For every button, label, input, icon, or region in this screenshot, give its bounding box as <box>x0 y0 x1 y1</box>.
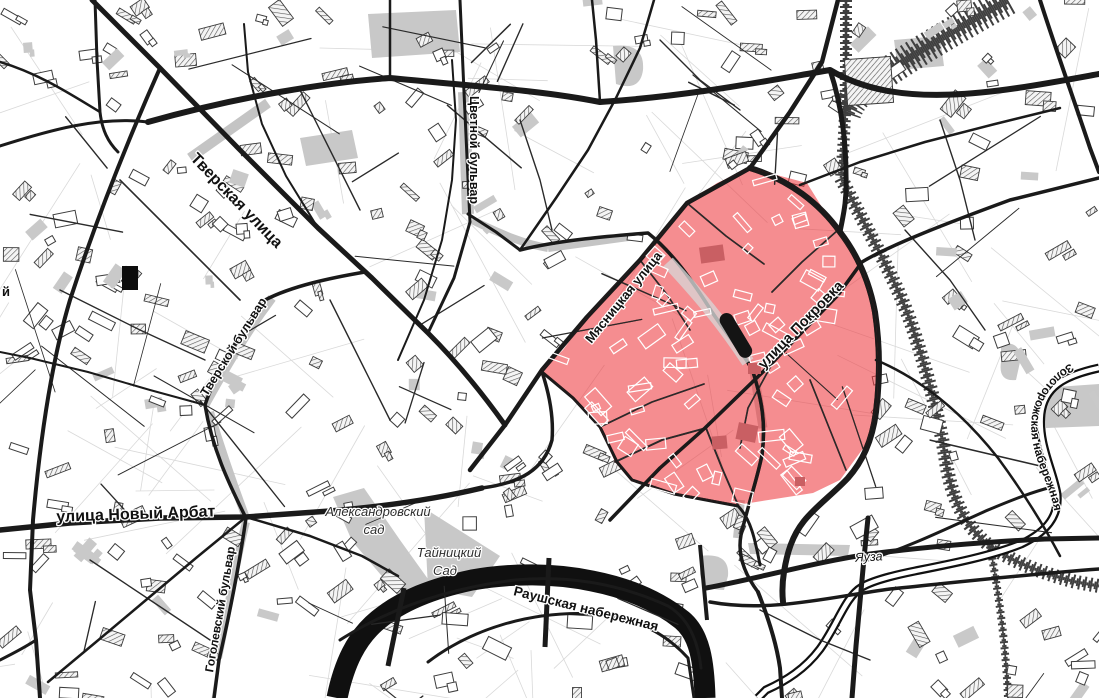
building <box>504 505 513 517</box>
building <box>327 579 353 603</box>
building <box>936 247 957 257</box>
building <box>163 160 176 174</box>
building <box>953 626 979 648</box>
building <box>1070 398 1078 408</box>
building <box>980 415 1004 430</box>
road <box>852 518 868 698</box>
building <box>1029 326 1056 340</box>
building <box>906 187 929 201</box>
railway-track <box>990 546 1008 698</box>
building <box>960 165 980 181</box>
building <box>316 7 333 24</box>
building <box>865 487 884 499</box>
road <box>520 0 654 250</box>
building <box>177 167 186 173</box>
building <box>458 653 473 668</box>
building <box>920 415 943 434</box>
building <box>595 509 608 524</box>
highlight-dark-building <box>711 435 727 449</box>
map-label-taynitsky-sad-line2: Сад <box>433 563 457 578</box>
building <box>45 236 56 246</box>
highlight-dark-building <box>699 244 725 263</box>
building <box>34 248 53 268</box>
building <box>159 635 174 643</box>
road <box>0 121 148 146</box>
building <box>371 208 384 219</box>
map-label-aleksandrovsky-sad-line2: сад <box>364 522 385 537</box>
building <box>1067 681 1090 698</box>
building <box>45 463 71 478</box>
building <box>384 451 393 461</box>
building <box>502 92 513 102</box>
building <box>244 231 250 238</box>
building <box>949 451 958 461</box>
building <box>190 194 208 213</box>
building <box>106 98 121 112</box>
building <box>482 636 511 660</box>
map-label-taynitsky-sad-line1: Тайницкий <box>417 545 482 560</box>
building <box>893 205 914 227</box>
building <box>755 49 766 55</box>
building <box>75 326 93 342</box>
building <box>269 0 294 26</box>
building <box>481 361 507 375</box>
road <box>205 272 365 698</box>
building <box>374 102 385 114</box>
map-label-tsvetnoy-bulvar: Цветной бульвар <box>467 96 481 204</box>
building <box>1015 405 1026 414</box>
building <box>82 693 104 698</box>
building <box>59 687 79 698</box>
building <box>895 435 912 453</box>
building <box>1007 685 1023 698</box>
map-svg: Тверская улицаЦветной бульварТверской бу… <box>0 0 1099 698</box>
building <box>544 251 566 269</box>
building <box>30 49 35 56</box>
road <box>244 24 318 228</box>
building <box>71 347 91 364</box>
map-label-ulitsa-novy-arbat: улица Новый Арбат <box>56 503 216 526</box>
building <box>108 544 125 561</box>
building <box>1021 172 1039 181</box>
building <box>110 71 128 79</box>
building <box>245 559 270 579</box>
map-label-edge-partial: й <box>2 284 10 299</box>
landmark-building <box>122 266 138 290</box>
building <box>987 80 999 87</box>
building <box>161 537 172 549</box>
building <box>406 88 424 107</box>
building <box>295 300 313 317</box>
building <box>277 598 292 605</box>
building <box>130 673 151 689</box>
building <box>434 149 454 167</box>
building <box>88 311 115 331</box>
building <box>257 608 279 621</box>
building <box>1065 0 1085 4</box>
building <box>716 1 737 25</box>
building <box>493 208 505 220</box>
building <box>332 415 353 432</box>
building <box>309 356 322 368</box>
building <box>935 508 944 517</box>
building <box>43 546 56 553</box>
highlight-dark-building <box>795 477 805 486</box>
building <box>641 143 651 154</box>
building <box>721 51 740 73</box>
building <box>1093 632 1099 643</box>
road <box>0 352 205 405</box>
building <box>861 172 868 178</box>
building <box>768 85 784 101</box>
building <box>53 271 73 294</box>
building <box>380 677 396 690</box>
building <box>598 453 610 463</box>
road <box>482 372 552 488</box>
building <box>180 406 192 416</box>
building <box>0 51 9 69</box>
building <box>969 133 990 150</box>
building <box>1020 609 1041 628</box>
building <box>643 40 650 46</box>
building <box>447 682 458 693</box>
building <box>619 565 630 574</box>
building <box>1022 6 1037 21</box>
map-label-aleksandrovsky-sad-line1: Александровский <box>324 504 430 519</box>
building <box>525 306 541 320</box>
building <box>419 405 436 422</box>
building <box>1071 661 1095 669</box>
building <box>141 578 152 587</box>
building <box>1042 626 1061 640</box>
building <box>262 20 268 26</box>
building <box>306 516 317 527</box>
building <box>129 169 149 186</box>
road <box>468 214 520 250</box>
building <box>181 331 210 354</box>
building <box>960 678 984 698</box>
building <box>446 417 463 434</box>
building <box>0 626 21 648</box>
building <box>406 355 423 372</box>
building <box>936 651 948 663</box>
road <box>1040 0 1099 172</box>
building <box>458 393 467 401</box>
building <box>104 429 115 443</box>
building <box>1077 487 1090 499</box>
building <box>463 517 477 530</box>
building <box>286 394 310 418</box>
building <box>489 271 513 291</box>
building <box>390 412 405 427</box>
building <box>967 8 975 16</box>
building <box>318 291 324 301</box>
moscow-map[interactable]: Тверская улицаЦветной бульварТверской бу… <box>0 0 1099 698</box>
building <box>199 23 226 40</box>
building <box>25 219 48 241</box>
map-label-yauza: Яуза <box>854 549 883 564</box>
building <box>3 553 26 559</box>
building <box>597 207 613 221</box>
building <box>697 10 716 17</box>
building <box>797 10 817 19</box>
building <box>606 7 622 20</box>
building <box>400 183 419 201</box>
building <box>9 442 29 454</box>
building <box>158 678 176 697</box>
building <box>939 116 955 135</box>
building <box>671 32 684 45</box>
building <box>675 533 695 549</box>
building <box>178 370 197 383</box>
building <box>1086 206 1097 216</box>
building <box>3 248 19 262</box>
building <box>183 53 190 58</box>
building <box>678 567 695 580</box>
building <box>1076 672 1089 686</box>
building <box>572 687 581 698</box>
building <box>210 282 214 288</box>
building <box>1007 665 1017 675</box>
building <box>585 189 594 198</box>
